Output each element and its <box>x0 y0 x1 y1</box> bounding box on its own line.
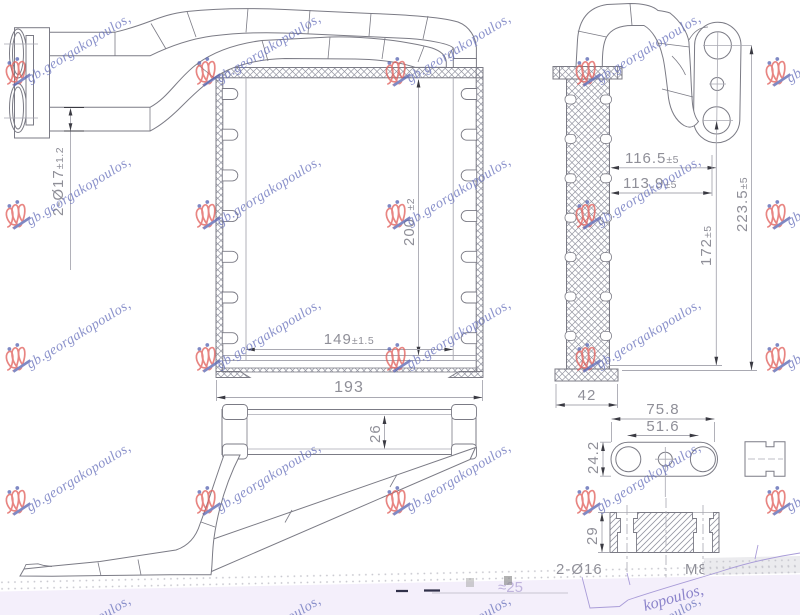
svg-text:75.8: 75.8 <box>646 401 679 418</box>
svg-text:193: 193 <box>334 379 364 396</box>
svg-text:26: 26 <box>367 424 384 443</box>
svg-text:51.6: 51.6 <box>646 418 679 435</box>
svg-text:29: 29 <box>584 526 601 545</box>
svg-text:42: 42 <box>578 387 597 404</box>
svg-text:24.2: 24.2 <box>585 441 602 474</box>
